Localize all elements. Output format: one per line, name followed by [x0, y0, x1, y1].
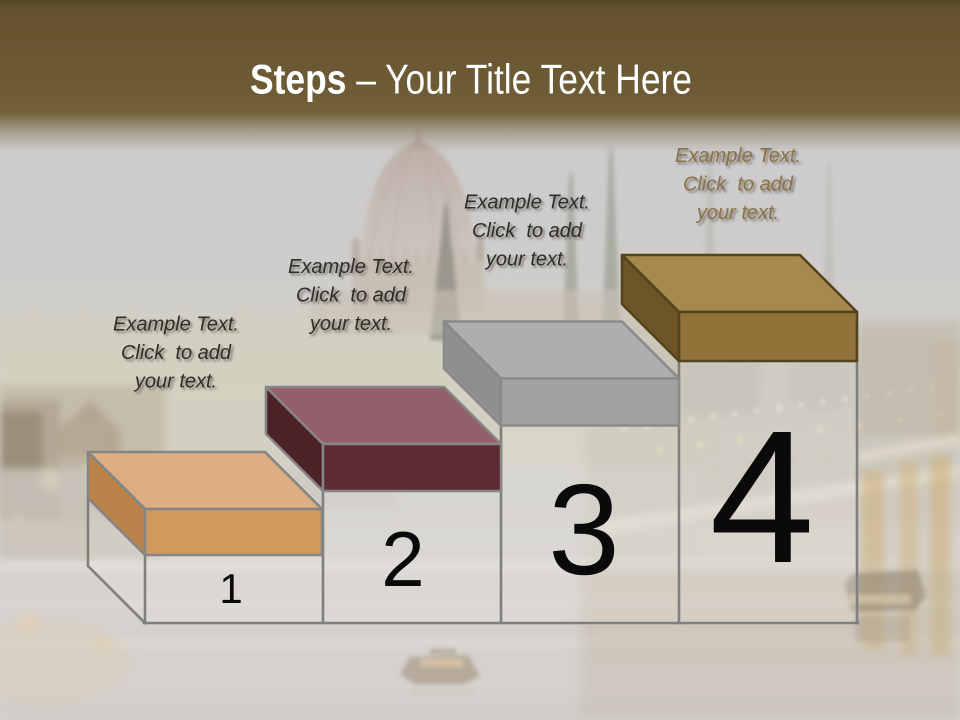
svg-text:Click to add: Click to add	[472, 220, 583, 242]
svg-text:your text.: your text.	[695, 202, 779, 224]
svg-text:3: 3	[548, 458, 620, 602]
svg-text:your text.: your text.	[308, 313, 392, 335]
svg-text:Steps – Your Title Text Here: Steps – Your Title Text Here	[250, 56, 692, 103]
svg-text:your text.: your text.	[133, 371, 217, 393]
svg-text:4: 4	[709, 392, 814, 603]
svg-text:Example Text.: Example Text.	[113, 314, 239, 336]
svg-text:Click to add: Click to add	[296, 285, 407, 307]
svg-text:2: 2	[381, 515, 424, 603]
svg-text:your text.: your text.	[484, 249, 568, 271]
svg-text:Click to add: Click to add	[121, 342, 232, 364]
svg-text:Example Text.: Example Text.	[464, 192, 590, 214]
svg-text:Example Text.: Example Text.	[288, 256, 414, 278]
svg-text:Click to add: Click to add	[683, 174, 794, 196]
svg-text:Example Text.: Example Text.	[675, 145, 801, 167]
svg-text:1: 1	[219, 565, 242, 612]
